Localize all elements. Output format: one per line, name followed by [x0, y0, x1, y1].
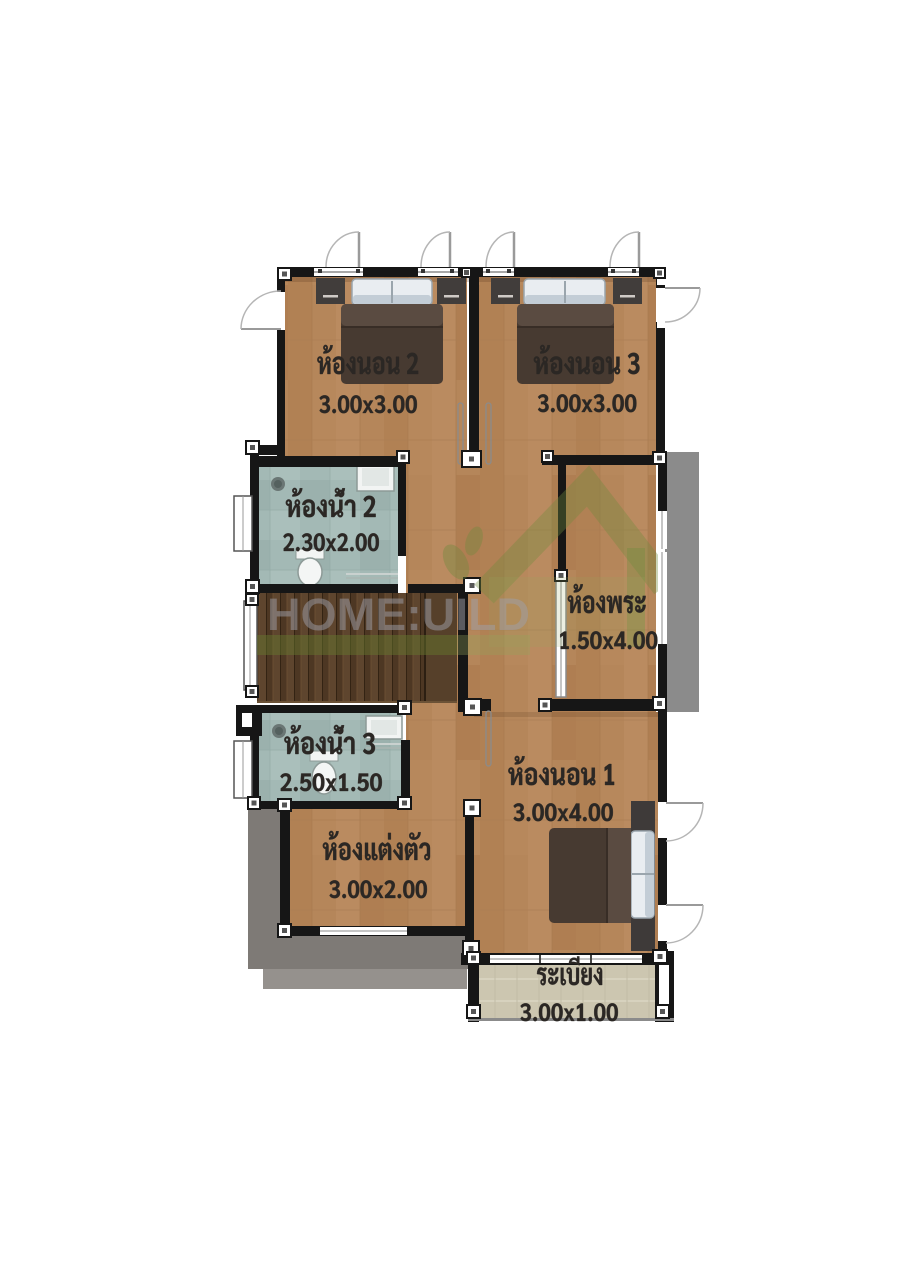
svg-text:HOME:UILD: HOME:UILD: [267, 589, 530, 640]
